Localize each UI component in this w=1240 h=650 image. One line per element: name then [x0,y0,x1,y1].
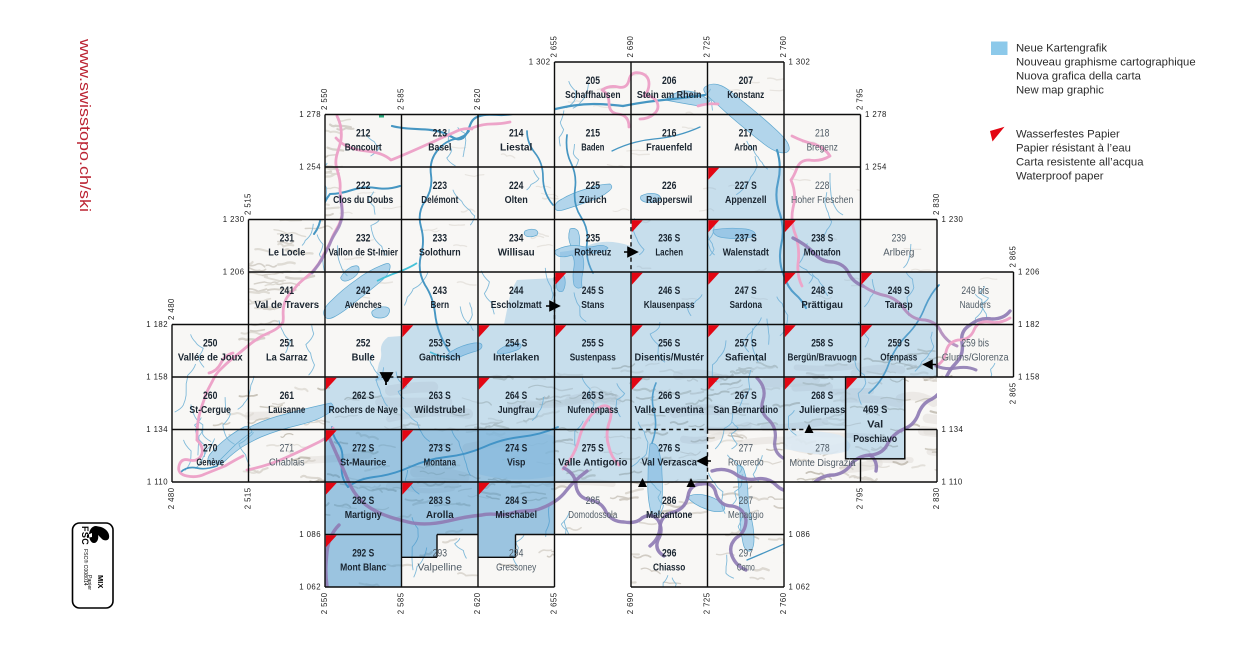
svg-text:1 086: 1 086 [299,530,321,539]
svg-text:242: 242 [356,285,370,297]
svg-text:286: 286 [662,495,676,507]
svg-text:233: 233 [433,232,447,244]
svg-text:Nouveau graphisme cartographiq: Nouveau graphisme cartographique [1016,57,1196,69]
svg-text:Baden: Baden [581,143,604,154]
svg-text:Arbon: Arbon [734,143,757,154]
svg-text:1 206: 1 206 [1018,268,1040,277]
svg-text:2 795: 2 795 [855,88,864,110]
svg-text:257 S: 257 S [735,337,757,349]
svg-text:2 480: 2 480 [167,298,176,320]
svg-text:1 134: 1 134 [146,425,168,434]
svg-text:Rochers de Naye: Rochers de Naye [329,405,399,416]
svg-text:1 062: 1 062 [789,583,811,592]
svg-text:Stein am Rhein: Stein am Rhein [637,90,702,101]
svg-text:Stans: Stans [581,300,604,311]
svg-text:Tarasp: Tarasp [885,300,913,311]
svg-text:Liestal: Liestal [500,143,533,154]
svg-text:2 550: 2 550 [320,88,329,110]
svg-text:241: 241 [280,285,294,297]
svg-text:245 S: 245 S [582,285,604,297]
svg-text:Wildstrubel: Wildstrubel [414,405,465,416]
svg-text:222: 222 [356,180,370,192]
svg-text:246 S: 246 S [658,285,680,297]
svg-text:Mischabel: Mischabel [495,510,537,521]
svg-text:Escholzmatt: Escholzmatt [491,300,542,311]
svg-text:297: 297 [739,547,753,559]
svg-text:259 S: 259 S [888,337,910,349]
svg-text:2 655: 2 655 [549,592,558,614]
svg-text:2 865: 2 865 [1008,382,1017,404]
svg-text:Glurns/Glorenza: Glurns/Glorenza [942,353,1009,364]
svg-text:215: 215 [586,127,600,139]
svg-text:273 S: 273 S [429,442,451,454]
svg-text:Solothurn: Solothurn [419,248,461,259]
svg-text:Schaffhausen: Schaffhausen [565,90,620,101]
svg-text:Rotkreuz: Rotkreuz [574,248,611,259]
svg-text:Konstanz: Konstanz [727,90,764,101]
svg-text:Appenzell: Appenzell [725,195,767,206]
svg-text:268 S: 268 S [811,390,833,402]
svg-text:2 515: 2 515 [243,193,252,215]
svg-text:New map graphic: New map graphic [1016,85,1104,97]
svg-text:Ofenpass: Ofenpass [880,353,917,364]
svg-text:Val: Val [867,419,883,430]
svg-text:223: 223 [433,180,447,192]
svg-text:216: 216 [662,127,676,139]
svg-text:1 302: 1 302 [789,58,811,67]
svg-text:Monte Disgrazia: Monte Disgrazia [790,458,856,469]
svg-text:1 158: 1 158 [1018,373,1040,382]
svg-text:285: 285 [586,495,600,507]
svg-text:Como: Como [737,563,755,574]
svg-text:2 830: 2 830 [932,193,941,215]
svg-text:La Sarraz: La Sarraz [266,353,308,364]
svg-text:249 bis: 249 bis [961,285,989,297]
svg-text:1 134: 1 134 [942,425,964,434]
svg-text:259 bis: 259 bis [961,337,989,349]
svg-text:276 S: 276 S [658,442,680,454]
svg-text:2 725: 2 725 [702,592,711,614]
svg-text:239: 239 [892,232,906,244]
svg-text:Roveredo: Roveredo [728,458,764,469]
svg-text:Valle Leventina: Valle Leventina [635,405,705,416]
svg-text:282 S: 282 S [352,495,374,507]
svg-text:Malcantone: Malcantone [646,510,693,521]
svg-text:251: 251 [280,337,294,349]
svg-text:Rapperswil: Rapperswil [646,195,692,206]
svg-text:243: 243 [433,285,447,297]
svg-text:Gantrisch: Gantrisch [419,353,461,364]
svg-text:469 S: 469 S [863,404,887,416]
svg-text:293: 293 [433,547,447,559]
svg-text:1 110: 1 110 [942,478,963,487]
svg-text:Papier: Papier [86,575,92,590]
svg-text:224: 224 [509,180,524,192]
svg-text:264 S: 264 S [505,390,527,402]
svg-text:1 230: 1 230 [223,215,245,224]
svg-text:262 S: 262 S [352,390,374,402]
svg-text:235: 235 [586,232,600,244]
svg-text:1 110: 1 110 [147,478,168,487]
svg-text:Papier résistant à l’eau: Papier résistant à l’eau [1016,143,1131,155]
svg-text:2 550: 2 550 [320,592,329,614]
svg-text:2 690: 2 690 [626,36,635,58]
svg-text:Waterproof paper: Waterproof paper [1016,171,1104,183]
svg-text:226: 226 [662,180,676,192]
svg-text:212: 212 [356,127,370,139]
svg-text:270: 270 [203,442,217,454]
svg-text:206: 206 [662,75,676,87]
svg-text:1 302: 1 302 [529,58,551,67]
svg-text:Zürich: Zürich [579,195,607,206]
svg-text:Walenstadt: Walenstadt [723,248,770,259]
svg-text:Vallée de Joux: Vallée de Joux [178,353,243,364]
svg-text:283 S: 283 S [429,495,451,507]
svg-text:Bergün/Bravuogn: Bergün/Bravuogn [788,353,857,364]
svg-text:254 S: 254 S [505,337,527,349]
svg-text:Neue Kartengrafik: Neue Kartengrafik [1016,43,1107,55]
svg-text:Val de Travers: Val de Travers [254,300,319,311]
svg-text:Willisau: Willisau [498,248,535,259]
svg-text:1 206: 1 206 [223,268,245,277]
svg-text:Clos du Doubs: Clos du Doubs [333,195,393,206]
svg-text:272 S: 272 S [352,442,374,454]
svg-text:Sardona: Sardona [730,300,763,311]
svg-text:227 S: 227 S [735,180,757,192]
svg-text:St-Maurice: St-Maurice [340,458,387,469]
svg-text:Domodossola: Domodossola [568,510,617,521]
svg-text:2 690: 2 690 [626,592,635,614]
svg-text:260: 260 [203,390,217,402]
svg-text:Delémont: Delémont [421,195,459,206]
svg-text:Jungfrau: Jungfrau [498,405,535,416]
svg-text:266 S: 266 S [658,390,680,402]
svg-text:1 182: 1 182 [1018,320,1040,329]
svg-text:225: 225 [586,180,600,192]
svg-text:265 S: 265 S [582,390,604,402]
svg-text:232: 232 [356,232,370,244]
svg-text:Avenches: Avenches [345,300,382,311]
svg-text:238 S: 238 S [811,232,833,244]
svg-text:1 062: 1 062 [299,583,321,592]
svg-text:2 585: 2 585 [396,592,405,614]
svg-text:261: 261 [280,390,294,402]
svg-text:294: 294 [509,547,523,559]
svg-text:Disentis/Mustér: Disentis/Mustér [635,353,704,364]
svg-text:Gressoney: Gressoney [496,563,536,574]
svg-text:Basel: Basel [428,143,451,154]
svg-text:2 760: 2 760 [779,592,788,614]
svg-text:275 S: 275 S [582,442,604,454]
svg-text:255 S: 255 S [582,337,604,349]
svg-text:296: 296 [662,547,676,559]
svg-text:234: 234 [509,232,524,244]
svg-text:www.swisstopo.ch/ski: www.swisstopo.ch/ski [76,38,93,212]
svg-text:Bregenz: Bregenz [807,143,838,154]
svg-text:Arlberg: Arlberg [883,248,914,259]
svg-text:247 S: 247 S [735,285,757,297]
svg-text:Sustenpass: Sustenpass [570,353,617,364]
svg-text:207: 207 [739,75,753,87]
svg-text:2 795: 2 795 [855,487,864,509]
svg-text:Montafon: Montafon [804,248,841,259]
svg-text:236 S: 236 S [658,232,680,244]
svg-text:267 S: 267 S [735,390,757,402]
svg-text:Wasserfestes Papier: Wasserfestes Papier [1016,129,1120,141]
svg-text:2 620: 2 620 [473,592,482,614]
svg-text:258 S: 258 S [811,337,833,349]
svg-text:228: 228 [815,180,829,192]
svg-text:1 230: 1 230 [942,215,964,224]
svg-text:2 760: 2 760 [779,36,788,58]
svg-text:Carta resistente all’acqua: Carta resistente all’acqua [1016,157,1144,169]
svg-text:Lausanne: Lausanne [268,405,305,416]
svg-text:2 865: 2 865 [1008,246,1017,268]
svg-text:Nuova grafica della carta: Nuova grafica della carta [1016,71,1142,83]
svg-text:274 S: 274 S [505,442,527,454]
svg-text:271: 271 [280,442,294,454]
svg-text:Mont Blanc: Mont Blanc [340,563,387,574]
svg-text:Bern: Bern [431,300,450,311]
svg-text:244: 244 [509,285,524,297]
svg-text:1 182: 1 182 [146,320,168,329]
svg-text:San Bernardino: San Bernardino [713,405,778,416]
svg-text:1 254: 1 254 [865,163,887,172]
svg-text:Genève: Genève [196,458,224,469]
svg-text:Valpelline: Valpelline [418,563,463,574]
svg-text:Visp: Visp [507,458,526,469]
svg-text:1 278: 1 278 [299,110,321,119]
svg-text:Le Locle: Le Locle [268,248,305,259]
svg-text:Prättigau: Prättigau [801,300,843,311]
svg-text:218: 218 [815,127,829,139]
svg-text:248 S: 248 S [811,285,833,297]
svg-text:Klausenpass: Klausenpass [644,300,695,311]
svg-text:Arolla: Arolla [426,510,454,521]
svg-text:277: 277 [739,442,753,454]
svg-text:250: 250 [203,337,217,349]
svg-text:Frauenfeld: Frauenfeld [646,143,692,154]
svg-text:Chiasso: Chiasso [653,563,685,574]
svg-text:292 S: 292 S [352,547,374,559]
svg-text:Safiental: Safiental [725,353,767,364]
svg-text:Val Verzasca: Val Verzasca [642,458,698,469]
svg-text:2 655: 2 655 [549,36,558,58]
svg-text:Olten: Olten [505,195,528,206]
svg-text:Hoher Freschen: Hoher Freschen [791,195,853,206]
svg-text:284 S: 284 S [505,495,527,507]
svg-text:1 158: 1 158 [146,373,168,382]
svg-text:Poschiavo: Poschiavo [853,434,897,445]
svg-text:MIX: MIX [96,575,105,588]
svg-text:1 086: 1 086 [789,530,811,539]
svg-text:205: 205 [586,75,600,87]
svg-text:Martigny: Martigny [345,510,382,521]
svg-text:Nufenenpass: Nufenenpass [567,405,618,416]
svg-text:Vallon de St-Imier: Vallon de St-Imier [328,248,398,259]
svg-text:Boncourt: Boncourt [345,143,383,154]
svg-text:2 725: 2 725 [702,36,711,58]
svg-text:237 S: 237 S [735,232,757,244]
svg-text:Interlaken: Interlaken [493,353,539,364]
svg-text:249 S: 249 S [888,285,910,297]
svg-text:213: 213 [433,127,447,139]
svg-text:2 620: 2 620 [473,88,482,110]
svg-text:Julierpass: Julierpass [799,405,846,416]
svg-text:Bulle: Bulle [352,353,376,364]
svg-text:231: 231 [280,232,294,244]
svg-text:St-Cergue: St-Cergue [189,405,231,416]
svg-text:Valle Antigorio: Valle Antigorio [558,458,627,469]
svg-text:256 S: 256 S [658,337,680,349]
svg-text:2 585: 2 585 [396,88,405,110]
svg-text:278: 278 [815,442,829,454]
svg-text:217: 217 [739,127,753,139]
svg-text:287: 287 [739,495,753,507]
svg-text:1 254: 1 254 [299,163,321,172]
svg-text:1 278: 1 278 [865,110,887,119]
svg-text:252: 252 [356,337,370,349]
svg-text:Menaggio: Menaggio [728,510,764,521]
svg-text:253 S: 253 S [429,337,451,349]
svg-text:2 480: 2 480 [167,487,176,509]
svg-text:Montana: Montana [424,458,457,469]
svg-text:263 S: 263 S [429,390,451,402]
svg-text:Lachen: Lachen [655,248,683,259]
svg-text:214: 214 [509,127,524,139]
svg-text:2 515: 2 515 [243,487,252,509]
svg-text:2 830: 2 830 [932,487,941,509]
svg-text:Chablais: Chablais [269,458,305,469]
svg-text:Nauders: Nauders [960,300,991,311]
